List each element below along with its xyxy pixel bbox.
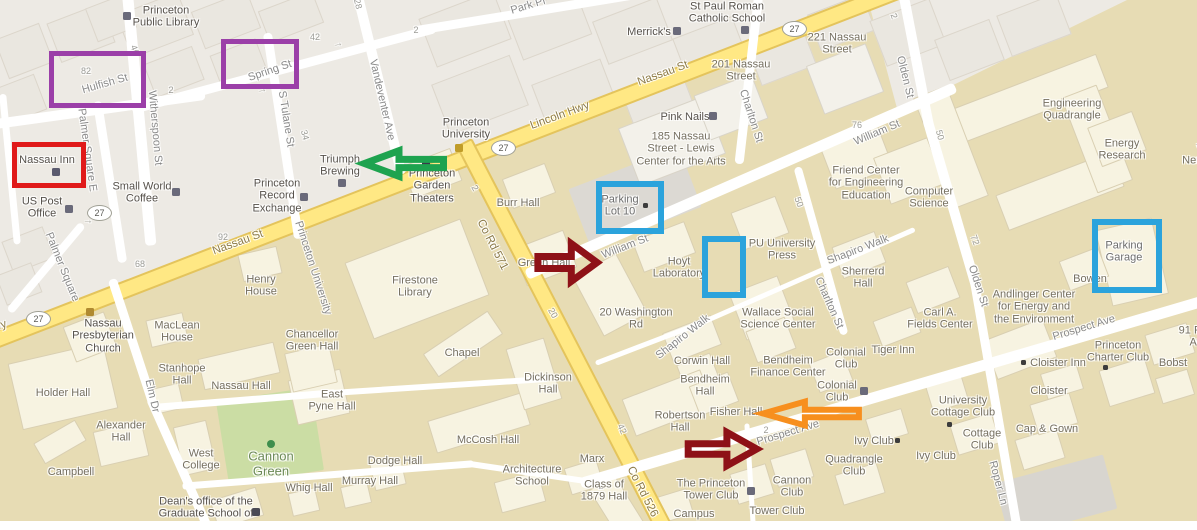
place-label-wallace-social-science-center: Wallace Social Science Center: [740, 307, 815, 332]
place-label-holder-hall: Holder Hall: [36, 387, 90, 399]
place-label-energy-research: Energy Research: [1098, 138, 1145, 163]
place-label-firestone-library: Firestone Library: [392, 275, 438, 300]
marker-square-icon[interactable]: [895, 438, 900, 443]
place-label-dickinson-hall: Dickinson Hall: [524, 372, 572, 397]
place-label-alexander-hall: Alexander Hall: [96, 420, 146, 445]
green-arrow-garden-theaters: [362, 149, 446, 178]
place-label-st-paul-roman-catholic-school: St Paul Roman Catholic School: [689, 1, 765, 26]
shopping-bag-icon[interactable]: [673, 27, 681, 35]
blue-box-hoyt-laboratory: [702, 236, 746, 298]
place-label-princeton-public-library: Princeton Public Library: [133, 5, 200, 30]
marker-square-icon[interactable]: [1021, 360, 1026, 365]
place-label-merrick-s: Merrick's: [627, 26, 671, 38]
place-label-pink-nails: Pink Nails: [661, 111, 710, 123]
street-number-92-7: 92: [218, 232, 228, 242]
shopping-bag-icon[interactable]: [300, 193, 308, 201]
place-label-the-princeton-tower-club: The Princeton Tower Club: [677, 478, 745, 503]
place-label-henry-house: Henry House: [245, 274, 277, 299]
place-label-computer-science: Computer Science: [905, 186, 953, 211]
place-label-tiger-inn: Tiger Inn: [871, 344, 914, 356]
martini-icon[interactable]: [747, 487, 755, 495]
place-label-maclean-house: MacLean House: [154, 320, 199, 345]
street-number-2-1: 2: [168, 85, 173, 95]
place-label-whig-hall: Whig Hall: [285, 482, 332, 494]
place-label-sherrerd-hall: Sherrerd Hall: [842, 266, 885, 291]
place-label-hoyt-laboratory: Hoyt Laboratory: [653, 256, 706, 281]
place-label-ivy-club: Ivy Club: [916, 450, 956, 462]
place-label-cannon-club: Cannon Club: [773, 475, 812, 500]
mail-icon[interactable]: [65, 205, 73, 213]
place-label-princeton-record-exchange: Princeton Record Exchange: [253, 178, 302, 215]
place-label-bendheim-hall: Bendheim Hall: [680, 374, 730, 399]
place-label-small-world-coffee: Small World Coffee: [112, 181, 171, 206]
dark-red-arrow-william-st: [536, 241, 599, 284]
place-label-triumph-brewing: Triumph Brewing: [320, 154, 360, 179]
church-icon[interactable]: [86, 308, 94, 316]
place-label-university-cottage-club: University Cottage Club: [931, 395, 995, 420]
place-label-dean-s-office-of-the-graduate-school-of: Dean's office of the Graduate School of: [159, 496, 254, 521]
place-label-20-washington-rd: 20 Washington Rd: [600, 307, 673, 332]
place-label-bobst: Bobst: [1159, 357, 1187, 369]
street-number-42-2: 42: [310, 32, 320, 42]
place-label-andlinger-center-for-energy-and-the-environment: Andlinger Center for Energy and the Envi…: [993, 289, 1076, 326]
book-icon[interactable]: [123, 12, 131, 20]
place-label-us-post-office: US Post Office: [22, 196, 62, 221]
blue-box-parking-lot-10: [596, 181, 664, 234]
place-label-bendheim-finance-center: Bendheim Finance Center: [750, 355, 825, 380]
street-number-76-10: 76: [852, 120, 862, 130]
place-label-chancellor-green-hall: Chancellor Green Hall: [286, 329, 339, 354]
place-label-east-pyne-hall: East Pyne Hall: [308, 389, 355, 414]
map-canvas[interactable]: 27272727 Nassau StLincoln HwyNassau StHw…: [0, 0, 1197, 530]
place-label-princeton-university: Princeton University: [442, 117, 490, 142]
place-label-cloister: Cloister: [1030, 385, 1067, 397]
place-label-corwin-hall: Corwin Hall: [674, 355, 730, 367]
tree-icon[interactable]: [267, 440, 275, 448]
place-label-mccosh-hall: McCosh Hall: [457, 434, 519, 446]
place-label-princeton-charter-club: Princeton Charter Club: [1087, 340, 1149, 365]
map-bottom-margin: [0, 521, 1197, 530]
restaurant-icon[interactable]: [172, 188, 180, 196]
place-label-class-of-1879-hall: Class of 1879 Hall: [581, 479, 627, 504]
place-label-carl-a-fields-center: Carl A. Fields Center: [907, 307, 972, 332]
place-label-fisher-hall: Fisher Hall: [710, 406, 763, 418]
place-label-marx: Marx: [580, 453, 604, 465]
place-label-cottage-club: Cottage Club: [963, 428, 1002, 453]
street-number-2-5: 2: [413, 25, 418, 35]
place-label-von-neumann: Von Neumann: [1182, 143, 1197, 168]
place-label-tower-club: Tower Club: [749, 505, 804, 517]
place-label-quadrangle-club: Quadrangle Club: [825, 454, 883, 479]
place-label-engineering-quadrangle: Engineering Quadrangle: [1043, 98, 1102, 123]
grad-cap-icon[interactable]: [252, 508, 260, 516]
purple-box-hulfish-st: [49, 51, 146, 108]
place-label-cloister-inn: Cloister Inn: [1030, 357, 1086, 369]
street-number-68-8: 68: [135, 259, 145, 269]
place-label-91-prospect-avenue: 91 Prospect Avenue: [1179, 325, 1197, 350]
place-label-185-nassau-street-lewis-center-for-the-arts: 185 Nassau Street - Lewis Center for the…: [636, 131, 725, 168]
place-label-friend-center-for-engineering-education: Friend Center for Engineering Education: [829, 165, 904, 202]
place-label-221-nassau-street: 221 Nassau Street: [808, 32, 867, 57]
place-label-nassau-presbyterian-church: Nassau Presbyterian Church: [72, 318, 134, 355]
place-label-campus: Campus: [674, 508, 715, 520]
place-label-colonial-club: Colonial Club: [826, 347, 866, 372]
place-label-murray-hall: Murray Hall: [342, 475, 398, 487]
oneway-arrow-icon-2: →: [83, 215, 93, 226]
blue-box-parking-garage: [1092, 219, 1162, 293]
dark-red-arrow-prospect-ave: [686, 430, 759, 468]
place-label-stanhope-hall: Stanhope Hall: [158, 363, 205, 388]
place-label-pu-university-press: PU University Press: [749, 238, 816, 263]
place-label-cannon-green: Cannon Green: [248, 449, 294, 478]
place-label-201-nassau-street: 201 Nassau Street: [712, 59, 771, 84]
oneway-arrow-icon-1: →: [332, 37, 344, 50]
marker-square-icon[interactable]: [1103, 365, 1108, 370]
red-box-nassau-inn: [12, 142, 86, 188]
place-label-ivy-club: Ivy Club: [854, 435, 894, 447]
scissors-icon[interactable]: [709, 112, 717, 120]
route-27-shield-3: 27: [782, 21, 807, 37]
place-label-cap-gown: Cap & Gown: [1016, 423, 1078, 435]
martini-icon[interactable]: [860, 387, 868, 395]
purple-box-spring-st: [221, 39, 299, 89]
martini-icon[interactable]: [338, 179, 346, 187]
marker-square-icon[interactable]: [947, 422, 952, 427]
place-label-burr-hall: Burr Hall: [497, 197, 540, 209]
route-27-shield-2: 27: [491, 140, 516, 156]
university-icon[interactable]: [455, 144, 463, 152]
place-label-west-college: West College: [182, 448, 219, 473]
place-label-chapel: Chapel: [445, 347, 480, 359]
place-label-architecture-school: Architecture School: [503, 464, 562, 489]
orange-arrow-fisher-hall: [760, 400, 862, 427]
route-27-shield-1: 27: [26, 311, 51, 327]
place-label-nassau-hall: Nassau Hall: [211, 380, 270, 392]
school-icon[interactable]: [741, 26, 749, 34]
place-label-dodge-hall: Dodge Hall: [368, 455, 422, 467]
place-label-campbell: Campbell: [48, 466, 94, 478]
